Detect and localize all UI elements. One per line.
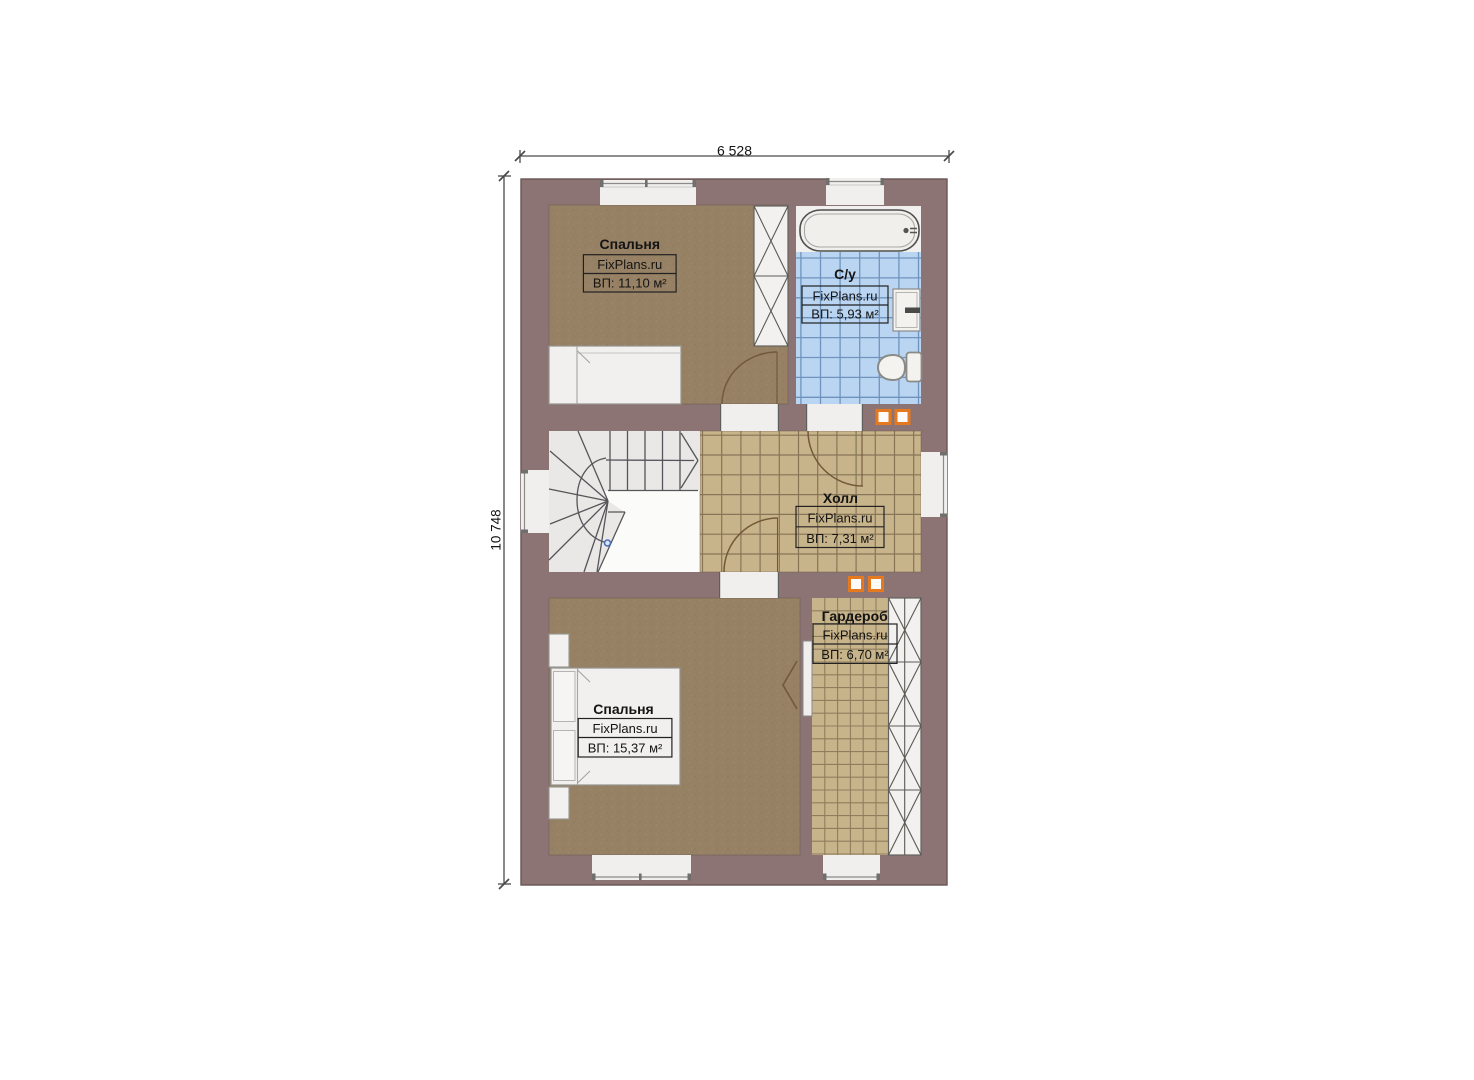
svg-text:FixPlans.ru: FixPlans.ru [593, 721, 658, 736]
svg-text:FixPlans.ru: FixPlans.ru [597, 257, 662, 272]
svg-text:Холл: Холл [823, 490, 858, 506]
svg-text:FixPlans.ru: FixPlans.ru [812, 289, 877, 304]
svg-text:ВП: 7,31 м²: ВП: 7,31 м² [806, 531, 874, 546]
svg-text:FixPlans.ru: FixPlans.ru [822, 628, 887, 643]
svg-text:Спальня: Спальня [593, 701, 653, 717]
svg-text:ВП: 6,70 м²: ВП: 6,70 м² [821, 647, 889, 662]
svg-text:Гардероб: Гардероб [822, 608, 889, 624]
svg-text:6 528: 6 528 [717, 143, 752, 159]
svg-text:10 748: 10 748 [489, 509, 504, 550]
svg-text:С/у: С/у [834, 266, 856, 282]
svg-text:ВП: 5,93 м²: ВП: 5,93 м² [811, 307, 879, 322]
svg-text:ВП: 11,10 м²: ВП: 11,10 м² [593, 276, 667, 291]
svg-text:Спальня: Спальня [600, 236, 660, 252]
svg-text:FixPlans.ru: FixPlans.ru [807, 510, 872, 525]
svg-text:ВП: 15,37 м²: ВП: 15,37 м² [588, 741, 663, 756]
